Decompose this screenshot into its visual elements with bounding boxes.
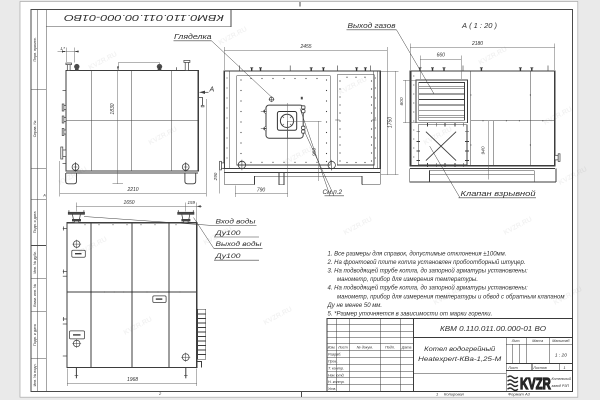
svg-text:2. На фронтовой плите котла ус: 2. На фронтовой плите котла установлен п… [327,259,526,266]
svg-text:КВМ 0.110.011.00.000-01 ВО: КВМ 0.110.011.00.000-01 ВО [440,324,546,333]
svg-text:Инв. № подл.: Инв. № подл. [33,363,37,386]
svg-text:Выход газов: Выход газов [348,21,396,30]
svg-text:5. *Размер уточняется в зависи: 5. *Размер уточняется в зависимости от м… [328,312,493,318]
svg-text:Н. контр.: Н. контр. [328,380,345,384]
svg-text:Лит.: Лит. [511,339,521,343]
svg-text:1650: 1650 [123,200,134,206]
svg-text:2180: 2180 [471,41,483,47]
svg-text:Котел водогрейный: Котел водогрейный [424,345,495,353]
svg-text:А: А [209,87,215,94]
svg-text:1 : 20: 1 : 20 [555,352,567,358]
svg-text:Листов: Листов [532,366,547,370]
svg-text:1. Все размеры для справок, до: 1. Все размеры для справок, допустимые о… [328,251,507,257]
svg-text:Клапан взрывной: Клапан взрывной [461,189,537,198]
svg-text:600: 600 [399,97,405,105]
svg-text:Разраб.: Разраб. [328,353,341,357]
svg-text:2455: 2455 [299,44,311,50]
svg-text:Масса: Масса [532,339,543,343]
svg-text:Ду не менее 50 мм.: Ду не менее 50 мм. [327,303,383,309]
svg-text:Нач. отд.: Нач. отд. [328,373,345,377]
svg-text:Лист: Лист [337,346,348,350]
svg-text:290: 290 [213,172,218,181]
svg-text:манометр, прибор для измерения: манометр, прибор для измерения температу… [337,277,478,283]
svg-text:Heatexpert-КВа-1,25-М: Heatexpert-КВа-1,25-М [418,356,501,363]
svg-text:завод РЗП: завод РЗП [551,384,570,388]
svg-text:1: 1 [563,366,565,370]
svg-text:940: 940 [481,146,487,154]
svg-text:2210: 2210 [126,187,138,193]
svg-text:Выход воды: Выход воды [216,240,262,248]
svg-text:Лист: Лист [507,366,518,370]
svg-text:3. На подводящей трубе котла,: 3. На подводящей трубе котла, до запорно… [328,268,528,275]
svg-text:Утв.: Утв. [328,387,336,391]
svg-text:Подп.: Подп. [385,346,395,350]
svg-text:Копировал: Копировал [444,392,465,397]
svg-text:А: А [42,194,46,198]
svg-text:Дата: Дата [401,346,412,350]
svg-text:790: 790 [257,187,266,193]
svg-text:Инв. № дубл.: Инв. № дубл. [33,251,37,274]
svg-text:Ду100: Ду100 [214,253,241,260]
svg-text:Формат А3: Формат А3 [508,392,531,397]
svg-text:Гляделка: Гляделка [174,32,212,41]
svg-text:Котельный: Котельный [552,377,572,381]
svg-text:Масштаб: Масштаб [552,339,570,343]
svg-text:Взам. инв. №: Взам. инв. № [33,284,37,307]
svg-text:159: 159 [188,200,196,205]
svg-text:L*: L* [61,46,66,52]
svg-text:Изм.: Изм. [328,346,336,350]
svg-text:4. На подводящей трубе котла,: 4. На подводящей трубе котла, до запорно… [328,285,528,292]
svg-text:Справ. №: Справ. № [33,120,37,137]
svg-text:1968: 1968 [127,377,138,383]
svg-text:Вход воды: Вход воды [216,217,256,225]
svg-text:1830: 1830 [110,103,116,114]
svg-text:Т. контр.: Т. контр. [328,366,344,370]
svg-text:Перв. примен.: Перв. примен. [33,37,37,62]
svg-text:Пров.: Пров. [328,360,338,364]
svg-text:№ докум.: № докум. [357,346,373,350]
svg-text:660: 660 [437,53,446,59]
svg-text:1: 1 [436,392,438,397]
svg-text:А ( 1 : 20 ): А ( 1 : 20 ) [461,21,498,30]
svg-text:Подп. и дата: Подп. и дата [33,323,37,346]
svg-text:1750: 1750 [388,117,394,128]
svg-text:Подп. и дата: Подп. и дата [33,210,37,233]
svg-text:KVZR: KVZR [520,375,551,392]
svg-text:КВМ0.110.011.00.000-01ВО: КВМ0.110.011.00.000-01ВО [63,13,224,23]
